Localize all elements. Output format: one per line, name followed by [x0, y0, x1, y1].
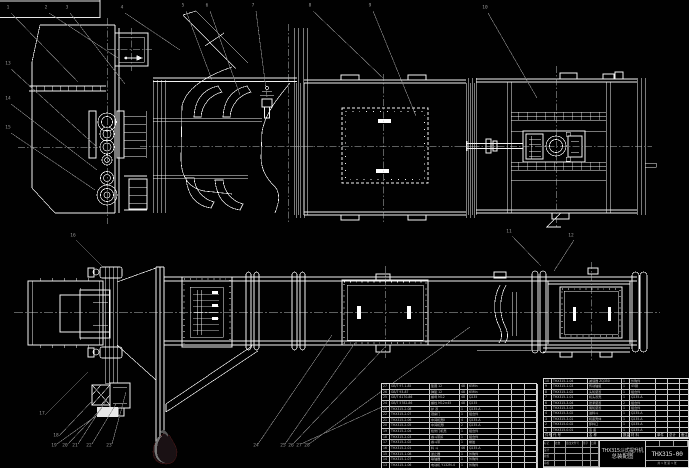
- callout-number: 22: [86, 444, 91, 449]
- callout-number: 26: [288, 444, 293, 449]
- bom-cell: 件号: [544, 433, 552, 438]
- bom-cell: 数量: [622, 433, 630, 438]
- callout-number: 28: [304, 444, 309, 449]
- callout-number: 27: [296, 444, 301, 449]
- view-head-section: [140, 11, 315, 222]
- bom-header-row: 件号代 号名 称数量材 料单件总计备注: [544, 433, 688, 438]
- callout-number: 20: [62, 444, 67, 449]
- bom-cell: 1: [460, 463, 468, 468]
- flame-logo-icon: [153, 430, 177, 464]
- title-block-number: THX315-00 共 1 张 第 1 张: [646, 441, 688, 467]
- bom-cell: 总计: [668, 433, 680, 438]
- view-boot-takeup-front: [18, 18, 152, 224]
- callout-number: 12: [568, 234, 573, 239]
- title-grid-cell: [566, 461, 583, 468]
- callout-number: 13: [5, 62, 10, 67]
- sheet-info: 共 1 张 第 1 张: [646, 460, 688, 467]
- callout-number: 5: [182, 4, 185, 9]
- view-drive-platform-plan: [460, 66, 656, 228]
- callout-number: 15: [5, 126, 10, 131]
- drawing-subtitle: 总装配图: [611, 454, 633, 461]
- frame-corner: [0, 0, 100, 18]
- callout-number: 25: [280, 444, 285, 449]
- callout-number: 16: [70, 234, 75, 239]
- callout-number: 21: [72, 444, 77, 449]
- bom-cell: 代 号: [552, 433, 588, 438]
- title-grid-cell: 审核: [544, 461, 555, 468]
- bom-cell: 备注: [680, 433, 689, 438]
- callout-number: 19: [51, 444, 56, 449]
- parts-list-table-right: 10THX315-1-04减速器 ZQ3501外购件9THX315-1-03传动…: [543, 378, 689, 439]
- drawing-number: THX315-00: [646, 447, 688, 460]
- callout-number: 17: [39, 412, 44, 417]
- callout-number: 8: [309, 4, 312, 9]
- view-mid-casing-plan: [292, 74, 478, 222]
- callout-number: 11: [506, 230, 511, 235]
- title-grid-row: 审核: [544, 461, 599, 468]
- cad-canvas: 27GB/T 97.1-85垫圈 124865Mn26GB/T 93-87弹垫 …: [0, 0, 689, 468]
- callout-number: 24: [253, 444, 258, 449]
- callout-number: 4: [121, 6, 124, 11]
- bom-cell: 名 称: [588, 433, 622, 438]
- callout-number: 3: [66, 6, 69, 11]
- callout-number: 23: [106, 444, 111, 449]
- bom-cell: 外购件: [468, 463, 499, 468]
- leader-lines: [11, 11, 574, 444]
- callout-number: 14: [5, 97, 10, 102]
- bom-cell: [525, 463, 538, 468]
- title-block-revision-grid: 标记处数更改文件号签字日期设计校核审核: [544, 441, 600, 467]
- bom-cell: [512, 463, 525, 468]
- title-block: 标记处数更改文件号签字日期设计校核审核 THX315斗式提升机 总装配图 THX…: [543, 440, 689, 468]
- bom-cell: [499, 463, 512, 468]
- bom-row: 13THX315-1-06电动机 Y132M-41外购件: [382, 463, 536, 468]
- bom-cell: 电动机 Y132M-4: [430, 463, 460, 468]
- title-grid-cell: [591, 461, 599, 468]
- title-grid-cell: [583, 461, 591, 468]
- callout-number: 6: [206, 4, 209, 9]
- bom-cell: 材 料: [630, 433, 656, 438]
- callout-number: 2: [45, 6, 48, 11]
- bom-cell: 单件: [656, 433, 668, 438]
- bom-cell: THX315-1-06: [390, 463, 430, 468]
- parts-list-table-left: 27GB/T 97.1-85垫圈 124865Mn26GB/T 93-87弹垫 …: [381, 383, 537, 468]
- callout-number: 1: [7, 6, 10, 11]
- title-grid-cell: [555, 461, 566, 468]
- bom-cell: 13: [382, 463, 390, 468]
- callout-number: 7: [252, 4, 255, 9]
- title-block-name: THX315斗式提升机 总装配图: [600, 441, 646, 467]
- callout-number: 18: [53, 434, 58, 439]
- callout-number: 9: [369, 4, 372, 9]
- callout-number: 10: [482, 6, 487, 11]
